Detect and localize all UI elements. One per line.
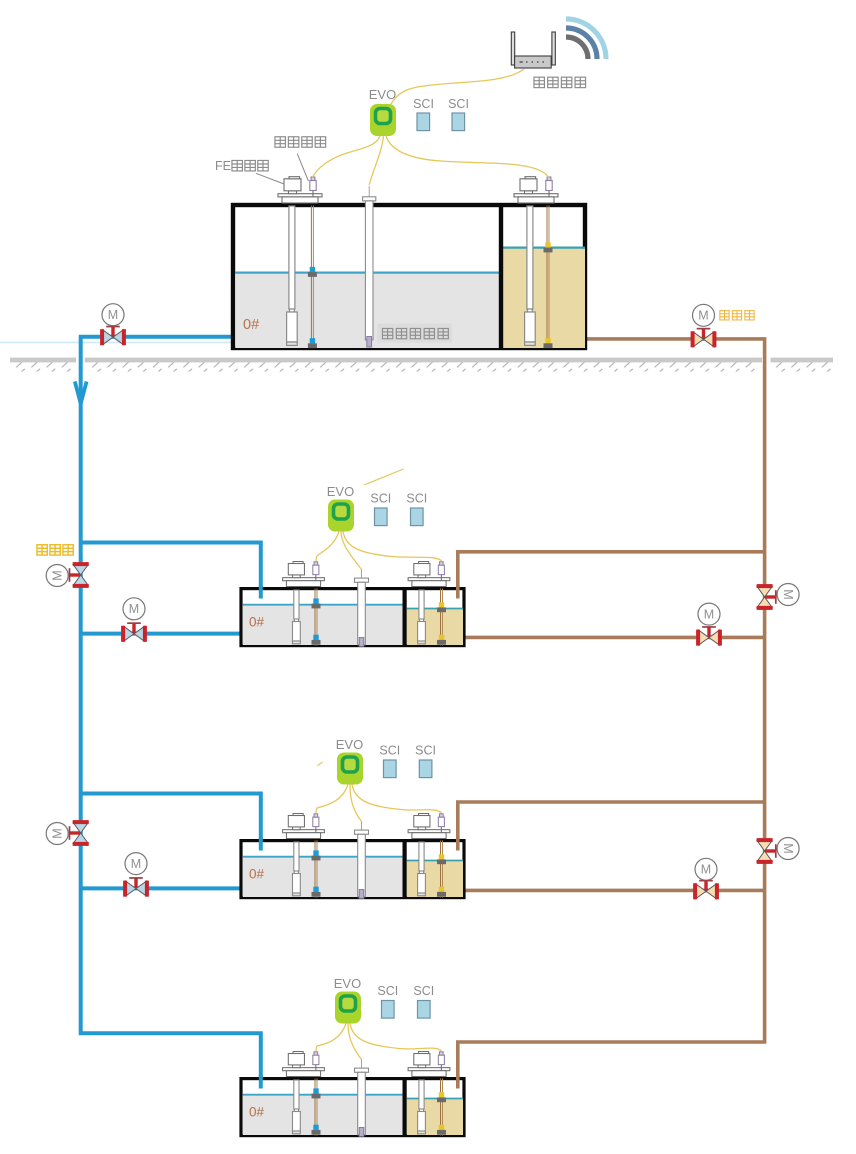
svg-text:0#: 0# — [243, 317, 259, 333]
svg-text:SCI: SCI — [413, 984, 434, 998]
svg-text:SCI: SCI — [413, 97, 434, 111]
svg-text:FE: FE — [215, 159, 231, 173]
svg-text:0#: 0# — [249, 1105, 265, 1120]
svg-text:M: M — [701, 863, 711, 877]
svg-text:0#: 0# — [249, 867, 265, 882]
svg-text:EVO: EVO — [327, 484, 354, 499]
svg-text:SCI: SCI — [406, 492, 427, 506]
svg-text:SCI: SCI — [377, 984, 398, 998]
svg-text:EVO: EVO — [369, 87, 396, 102]
svg-text:EVO: EVO — [334, 976, 361, 991]
svg-text:M: M — [50, 828, 64, 838]
svg-text:M: M — [698, 309, 708, 323]
svg-text:EVO: EVO — [336, 737, 363, 752]
svg-text:M: M — [781, 843, 795, 853]
svg-text:SCI: SCI — [379, 744, 400, 758]
svg-text:SCI: SCI — [415, 744, 436, 758]
svg-text:M: M — [781, 589, 795, 599]
svg-text:SCI: SCI — [370, 492, 391, 506]
svg-text:M: M — [704, 607, 714, 621]
svg-text:M: M — [129, 602, 139, 616]
svg-text:0#: 0# — [249, 615, 265, 630]
svg-text:M: M — [50, 570, 64, 580]
svg-text:M: M — [131, 857, 141, 871]
svg-text:SCI: SCI — [448, 97, 469, 111]
svg-text:M: M — [108, 308, 118, 322]
